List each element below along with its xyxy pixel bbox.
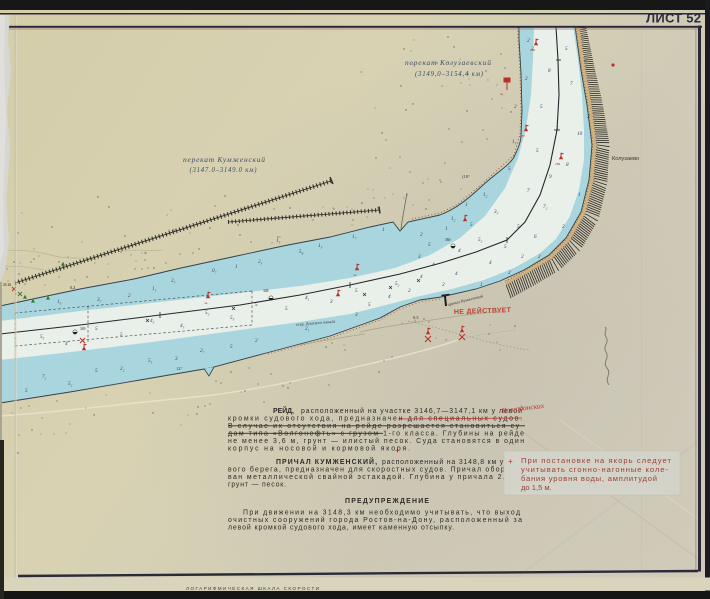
svg-text:4: 4 <box>420 273 423 280</box>
svg-text:1: 1 <box>578 192 581 198</box>
svg-text:При движении на 3148,3 км необ: При движении на 3148,3 км необходимо учи… <box>243 509 520 517</box>
svg-text:5: 5 <box>536 148 539 154</box>
svg-text:12°: 12° <box>176 366 183 371</box>
svg-text:3: 3 <box>175 356 178 362</box>
svg-text:5: 5 <box>95 368 98 374</box>
svg-text:4: 4 <box>388 293 391 300</box>
svg-text:5: 5 <box>25 388 28 394</box>
svg-text:1: 1 <box>445 226 448 232</box>
svg-text:1: 1 <box>382 227 385 233</box>
svg-text:до 1,5 м.: до 1,5 м. <box>521 483 552 492</box>
svg-text:(18°: (18° <box>462 174 470 179</box>
svg-text:5: 5 <box>230 344 233 350</box>
svg-text:2: 2 <box>514 104 517 110</box>
svg-text:ЛОГАРИФМИЧЕСКАЯ ШКАЛА СКОРОС: ЛОГАРИФМИЧЕСКАЯ ШКАЛА СКОРОСТИ <box>186 586 319 591</box>
svg-text:лк: лк <box>353 273 357 277</box>
svg-text:2: 2 <box>562 224 565 230</box>
svg-text:4: 4 <box>458 247 461 254</box>
svg-text:не менее 3,6 м, грунт — илисты: не менее 3,6 м, грунт — илистый песок. С… <box>228 437 524 445</box>
svg-text:1: 1 <box>235 264 238 270</box>
svg-text:6: 6 <box>534 234 537 240</box>
svg-text:7: 7 <box>527 188 530 194</box>
svg-text:2: 2 <box>527 38 530 44</box>
svg-text:кромки судового хода, предназ: кромки судового хода, предназначен для с… <box>228 416 522 423</box>
svg-text:349: 349 <box>80 327 86 331</box>
svg-text:9: 9 <box>549 174 552 180</box>
svg-text:лк: лк <box>204 301 208 305</box>
svg-text:1: 1 <box>480 282 483 288</box>
svg-text:5: 5 <box>255 302 258 308</box>
svg-text:перекат Кумженский: перекат Кумженский <box>183 155 265 164</box>
svg-text:5: 5 <box>504 244 507 250</box>
svg-text:вого берега, предназначен для: вого берега, предназначен для скоростных… <box>228 466 523 474</box>
svg-text:2: 2 <box>525 76 528 82</box>
svg-text:5: 5 <box>428 242 431 248</box>
svg-text:5: 5 <box>355 288 358 294</box>
svg-text:5: 5 <box>285 306 288 312</box>
svg-text:3: 3 <box>418 254 421 260</box>
svg-text:левой кромкой судового хода, и: левой кромкой судового хода, имеет камен… <box>228 524 454 532</box>
svg-text:расположенный на 3148,8 км у п: расположенный на 3148,8 км у пра- <box>382 458 523 466</box>
svg-text:8: 8 <box>566 162 569 168</box>
svg-text:2: 2 <box>584 58 587 64</box>
svg-text:26 26: 26 26 <box>3 283 11 287</box>
svg-text:3: 3 <box>355 312 358 318</box>
svg-text:10: 10 <box>577 131 583 137</box>
svg-text:+: + <box>395 446 400 455</box>
svg-text:5: 5 <box>556 126 559 132</box>
svg-text:2: 2 <box>255 338 258 344</box>
svg-text:2: 2 <box>538 254 541 260</box>
svg-text:7: 7 <box>570 81 573 87</box>
svg-text:(3147.0–3149.0 км): (3147.0–3149.0 км) <box>190 167 258 174</box>
svg-text:1: 1 <box>465 202 468 208</box>
svg-text:4: 4 <box>455 270 458 277</box>
svg-text:корпус на носовой и кормовой я: корпус на носовой и кормовой якоря. <box>228 445 410 453</box>
svg-text:ПРЕДУПРЕЖДЕНИЕ: ПРЕДУПРЕЖДЕНИЕ <box>345 498 429 505</box>
svg-text:289: 289 <box>555 162 560 166</box>
svg-text:2: 2 <box>442 282 445 288</box>
svg-text:5: 5 <box>508 166 511 172</box>
svg-text:очистных сооружений города Рос: очистных сооружений города Ростов-на-Дон… <box>228 516 522 524</box>
svg-text:При постановке на якорь следуе: При постановке на якорь следует <box>521 456 672 465</box>
svg-text:РЕЙД,: РЕЙД, <box>273 406 294 415</box>
svg-text:2: 2 <box>508 270 511 276</box>
svg-text:5: 5 <box>470 222 473 228</box>
svg-text:ЛИСТ 52: ЛИСТ 52 <box>646 11 701 26</box>
svg-text:2: 2 <box>128 293 131 299</box>
svg-text:2: 2 <box>420 232 423 238</box>
svg-text:5: 5 <box>368 302 371 308</box>
svg-text:грунт — песок.: грунт — песок. <box>228 482 286 489</box>
svg-text:учитывать сгонно-нагонные коле: учитывать сгонно-нагонные коле- <box>521 465 668 474</box>
svg-text:287: 287 <box>520 134 525 138</box>
svg-text:5: 5 <box>120 332 123 338</box>
svg-text:2: 2 <box>521 254 524 260</box>
svg-text:348: 348 <box>263 289 269 293</box>
svg-text:5: 5 <box>540 104 543 110</box>
svg-text:2: 2 <box>587 114 590 120</box>
svg-text:Колузаево: Колузаево <box>612 156 639 162</box>
svg-text:5: 5 <box>517 224 520 230</box>
svg-text:зн: зн <box>500 92 503 96</box>
svg-text:5: 5 <box>565 46 568 52</box>
svg-text:360: 360 <box>445 238 451 242</box>
svg-text:(3149,0–3154,4 км): (3149,0–3154,4 км) <box>415 71 484 78</box>
svg-text:+: + <box>508 457 513 466</box>
svg-text:4: 4 <box>489 259 492 266</box>
svg-text:2: 2 <box>408 288 411 294</box>
svg-text:4: 4 <box>432 261 435 268</box>
svg-text:3: 3 <box>330 299 333 305</box>
svg-text:8: 8 <box>548 68 551 74</box>
svg-text:4: 4 <box>65 340 68 347</box>
svg-text:перекат Колузаевский: перекат Колузаевский <box>405 58 491 67</box>
svg-text:5: 5 <box>95 326 98 332</box>
svg-text:бания уровня воды, амплитудой: бания уровня воды, амплитудой <box>521 474 657 483</box>
svg-text:расположенный на участке 3146,: расположенный на участке 3146,7—3147,1 к… <box>301 407 522 415</box>
svg-text:286: 286 <box>530 48 535 52</box>
